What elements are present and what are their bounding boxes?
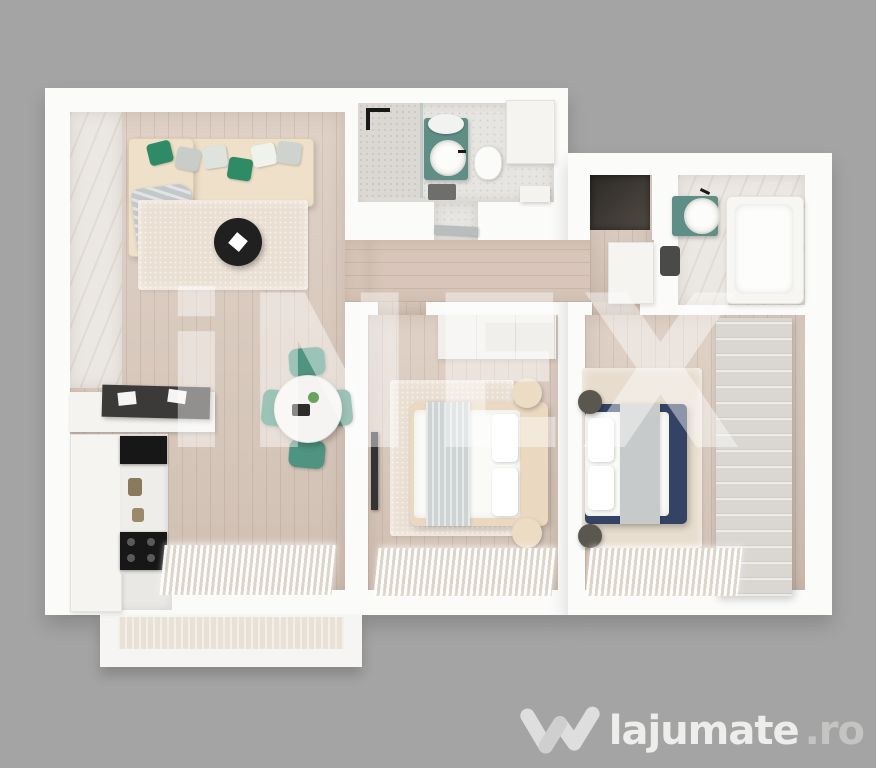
burner-icon — [147, 554, 155, 562]
bathroom1-mirror — [428, 114, 464, 134]
tv-decor-frame-1 — [117, 391, 136, 406]
bedroom1-window-curtain — [373, 548, 556, 596]
sofa-pillow-gray-2 — [276, 141, 303, 166]
balcony-floor — [118, 617, 344, 649]
bathroom2-sink — [684, 198, 720, 234]
entry-door-mat — [590, 175, 650, 230]
burner-icon — [147, 538, 155, 546]
shower-pipe-fixture — [366, 108, 370, 130]
sofa-pillow-light — [202, 144, 229, 169]
bathroom1-faucet — [458, 150, 466, 153]
bathroom1-mat — [428, 184, 456, 200]
bathroom1-cabinet — [506, 100, 555, 164]
burner-icon — [127, 538, 135, 546]
floorplan-image: iNEX lajumate.ro — [0, 0, 876, 768]
site-logo-tld: .ro — [805, 708, 864, 754]
kitchen-kettle — [132, 508, 144, 522]
sofa-pillow-gray-1 — [174, 146, 202, 173]
agency-watermark: iNEX — [160, 268, 750, 480]
shower-glass-panel — [420, 103, 423, 198]
site-logo: lajumate.ro — [517, 702, 864, 760]
sofa-pillow-green-2 — [226, 156, 253, 181]
kitchen-cooktop — [120, 532, 167, 570]
kitchen-coffee-machine — [128, 478, 142, 496]
living-marble-accent-wall — [70, 112, 122, 388]
burner-icon — [127, 554, 135, 562]
kitchen-tall-cabinet — [70, 434, 122, 612]
bedroom1-nightstand-bottom — [512, 518, 542, 548]
lajumate-check-icon — [517, 702, 603, 760]
living-window-curtain — [159, 545, 336, 595]
bathroom1-stool — [520, 186, 550, 202]
bedroom2-window-curtain — [585, 548, 742, 596]
bathroom1-toilet — [474, 146, 502, 180]
bathroom1-sink — [430, 140, 466, 176]
bedroom2-pouf-bottom — [578, 524, 602, 548]
site-logo-name: lajumate — [609, 708, 799, 754]
